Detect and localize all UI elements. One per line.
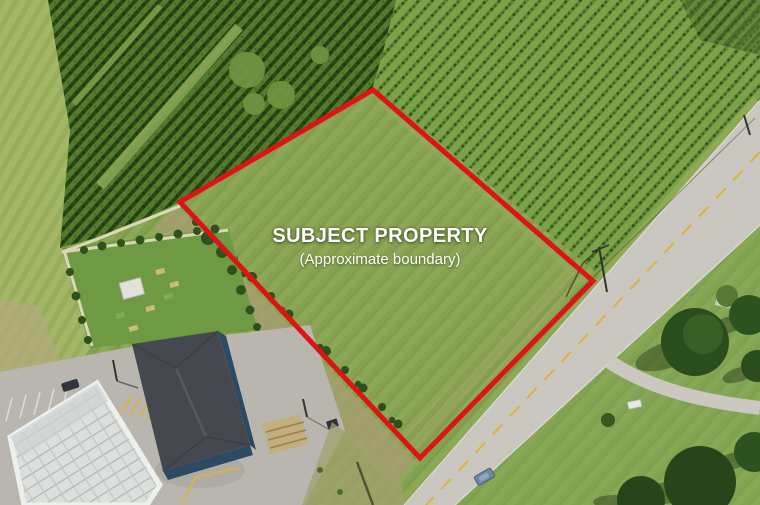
aerial-photo (0, 0, 760, 505)
picnic-area (62, 228, 258, 348)
aerial-screenshot: SUBJECT PROPERTY (Approximate boundary) (0, 0, 760, 505)
scrub-bush-2 (337, 489, 343, 495)
scrub-bush (317, 467, 323, 473)
